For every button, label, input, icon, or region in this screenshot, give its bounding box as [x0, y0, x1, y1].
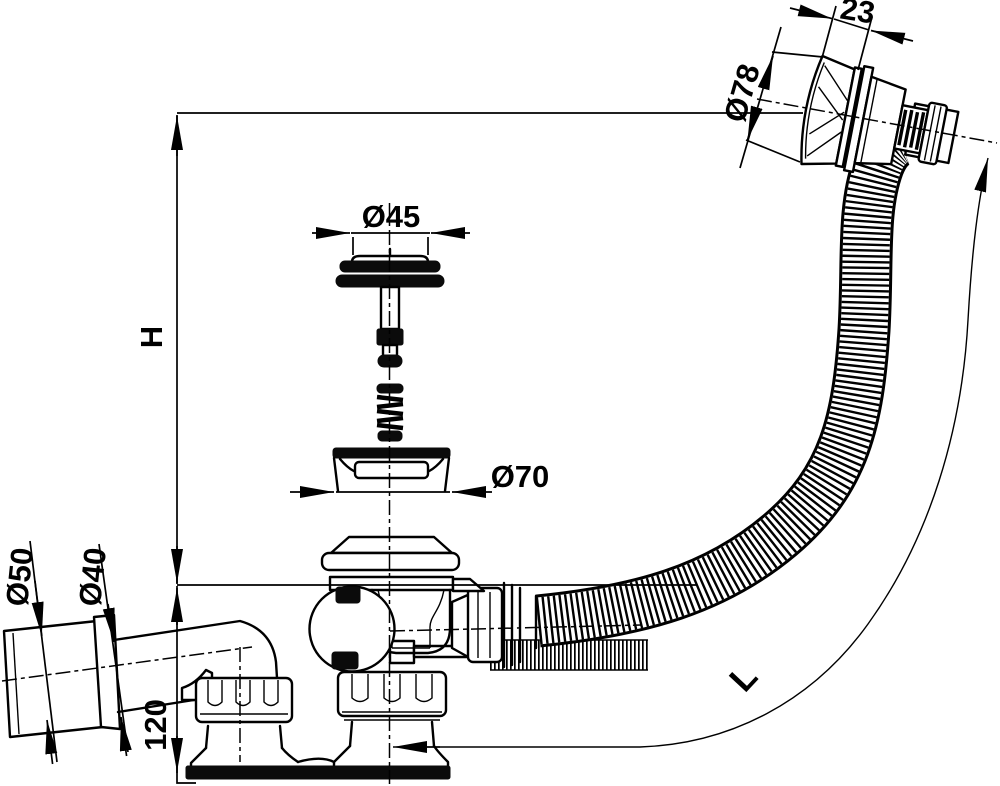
tee-outlet-connector	[390, 583, 520, 667]
drain-base-right	[334, 672, 448, 766]
label-H: H	[134, 326, 169, 348]
label-d50: Ø50	[0, 546, 40, 608]
label-d40: Ø40	[72, 546, 113, 608]
label-d45: Ø45	[362, 199, 421, 234]
base-plate	[186, 766, 450, 779]
label-d70: Ø70	[491, 459, 550, 494]
label-d78: Ø78	[717, 60, 767, 126]
clamp-screw-bottom	[332, 652, 358, 669]
clamp-screw-top	[336, 587, 360, 603]
label-120: 120	[138, 699, 173, 751]
dim-d45: Ø45	[312, 199, 470, 255]
corrugated-hose	[536, 140, 900, 648]
hose-fine-end-tube	[490, 640, 648, 670]
drain-assembly-drawing: H 120 Ø45 Ø70 Ø50 Ø40	[0, 0, 1000, 786]
pipe-socket	[4, 621, 103, 737]
label-L: L	[722, 657, 765, 699]
gasket	[322, 537, 459, 570]
dim-23: 23	[790, 0, 913, 70]
dim-H: H	[134, 113, 803, 585]
label-23: 23	[838, 0, 878, 31]
technical-drawing-canvas: H 120 Ø45 Ø70 Ø50 Ø40	[0, 0, 1000, 786]
dim-120: 120	[138, 586, 196, 783]
upper-flange	[333, 448, 450, 491]
